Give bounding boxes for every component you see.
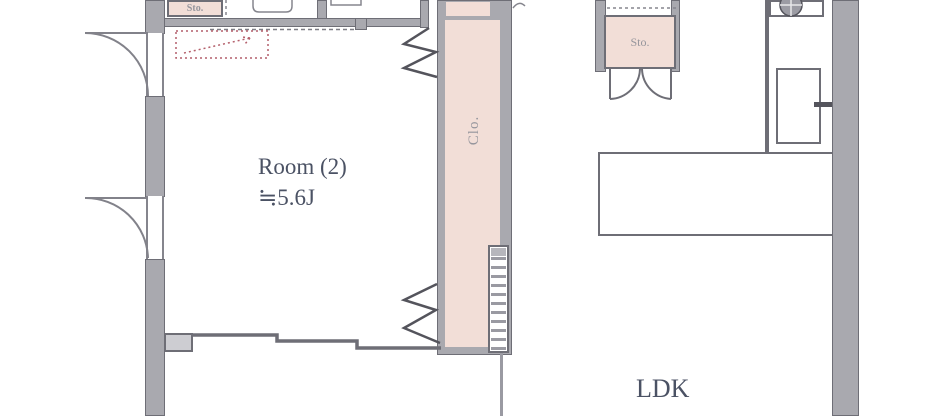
left-wall-middle bbox=[145, 96, 165, 197]
hall-partition-line bbox=[500, 353, 503, 416]
ladder-top-cap bbox=[491, 248, 506, 256]
storage-mid-box: Sto. bbox=[604, 15, 676, 69]
left-wall-lower bbox=[145, 259, 165, 416]
sliding-door-symbol bbox=[193, 335, 441, 348]
room2-top-wall-notch bbox=[355, 18, 367, 30]
door-swing-1 bbox=[85, 33, 148, 96]
refrigerator-handle bbox=[814, 102, 833, 107]
ladder-symbol bbox=[488, 245, 509, 353]
break-mark bbox=[513, 3, 525, 8]
left-door-opening-1 bbox=[146, 33, 164, 97]
kitchen-counter bbox=[598, 152, 834, 236]
washbasin-fixture bbox=[253, 0, 292, 12]
folding-door-bottom-symbol bbox=[404, 284, 440, 343]
room2-label-block: Room (2) ≒5.6J bbox=[258, 151, 398, 213]
kitchen-divider-wall bbox=[765, 0, 769, 153]
right-wall bbox=[832, 0, 859, 416]
storage-double-door-symbol bbox=[610, 69, 671, 99]
room2-size: ≒5.6J bbox=[258, 182, 398, 213]
ladder-rungs bbox=[491, 257, 506, 350]
partial-fixture bbox=[331, 0, 361, 5]
room2-label: Room (2) bbox=[258, 151, 398, 182]
partition-tab bbox=[164, 333, 193, 352]
closet-label: Clo. bbox=[466, 115, 483, 144]
upper-room-divider bbox=[317, 0, 327, 19]
storage-top-left-box: Sto. bbox=[167, 0, 223, 17]
door-swing-2 bbox=[85, 198, 148, 258]
floor-plan: Sto. Sto. bbox=[0, 0, 936, 416]
top-wall-stub-end bbox=[420, 0, 429, 28]
loft-arrow-annotation bbox=[176, 31, 268, 58]
storage-mid-label: Sto. bbox=[630, 35, 649, 50]
left-wall-upper bbox=[145, 0, 165, 34]
stove-unit bbox=[769, 0, 824, 17]
closet-label-wrap: Clo. bbox=[437, 70, 512, 190]
left-door-opening-2 bbox=[146, 196, 164, 260]
storage-top-left-label: Sto. bbox=[187, 3, 203, 14]
folding-door-top-symbol bbox=[404, 28, 437, 77]
room2-top-wall bbox=[164, 18, 429, 27]
closet-top-segment bbox=[446, 2, 490, 16]
ldk-label: LDK bbox=[636, 374, 689, 404]
